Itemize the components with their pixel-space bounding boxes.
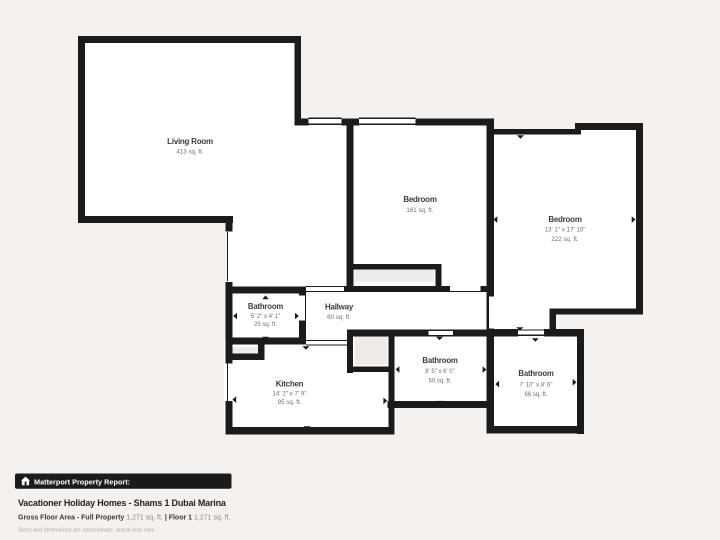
svg-text:50 sq. ft.: 50 sq. ft. (428, 379, 451, 385)
svg-text:222 sq. ft.: 222 sq. ft. (551, 236, 578, 243)
svg-text:66 sq. ft.: 66 sq. ft. (524, 392, 547, 398)
svg-text:8' 5" x 6' 0": 8' 5" x 6' 0" (425, 369, 455, 375)
svg-text:14' 2" x 7' 9": 14' 2" x 7' 9" (273, 391, 307, 398)
svg-text:25 sq. ft.: 25 sq. ft. (254, 322, 277, 328)
svg-text:13' 1" x 17' 10": 13' 1" x 17' 10" (545, 227, 586, 234)
svg-text:Bathroom: Bathroom (422, 356, 457, 365)
svg-text:Matterport Property Report:: Matterport Property Report: (34, 477, 130, 486)
svg-text:Bathroom: Bathroom (518, 369, 553, 378)
svg-text:5' 2" x 4' 1": 5' 2" x 4' 1" (251, 314, 281, 320)
svg-text:Hallway: Hallway (325, 303, 354, 312)
svg-text:413 sq. ft.: 413 sq. ft. (176, 148, 203, 155)
svg-text:Bedroom: Bedroom (548, 215, 582, 224)
svg-text:Living Room: Living Room (167, 137, 213, 146)
svg-text:Gross Floor Area - Full Proper: Gross Floor Area - Full Property 1,271 s… (18, 515, 231, 522)
svg-text:Sizes and dimensions are appro: Sizes and dimensions are approximate, ac… (18, 527, 155, 533)
svg-text:161 sq. ft.: 161 sq. ft. (406, 207, 433, 214)
svg-text:Kitchen: Kitchen (276, 380, 304, 389)
svg-text:7' 10" x 8' 6": 7' 10" x 8' 6" (520, 383, 553, 389)
svg-text:95 sq. ft.: 95 sq. ft. (278, 399, 302, 406)
svg-text:60 sq. ft.: 60 sq. ft. (327, 314, 351, 321)
svg-text:Vacationer Holiday Homes - Sha: Vacationer Holiday Homes - Shams 1 Dubai… (18, 498, 227, 508)
svg-text:Bathroom: Bathroom (248, 302, 283, 311)
svg-text:Bedroom: Bedroom (403, 195, 437, 204)
